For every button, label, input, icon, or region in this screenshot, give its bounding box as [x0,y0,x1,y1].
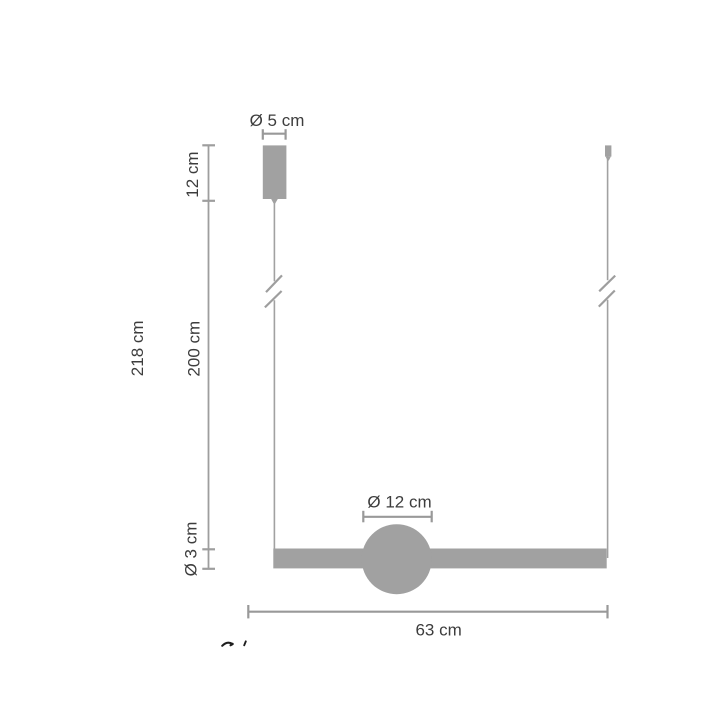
svg-text:218 cm: 218 cm [128,320,147,376]
svg-text:Ø 12 cm: Ø 12 cm [367,493,431,512]
svg-text:200 cm: 200 cm [184,321,203,377]
svg-text:63 cm: 63 cm [415,621,461,640]
svg-text:Ø 3 cm: Ø 3 cm [182,522,201,577]
svg-text:12 cm: 12 cm [183,151,202,197]
svg-text:Ø 5 cm: Ø 5 cm [250,111,305,130]
